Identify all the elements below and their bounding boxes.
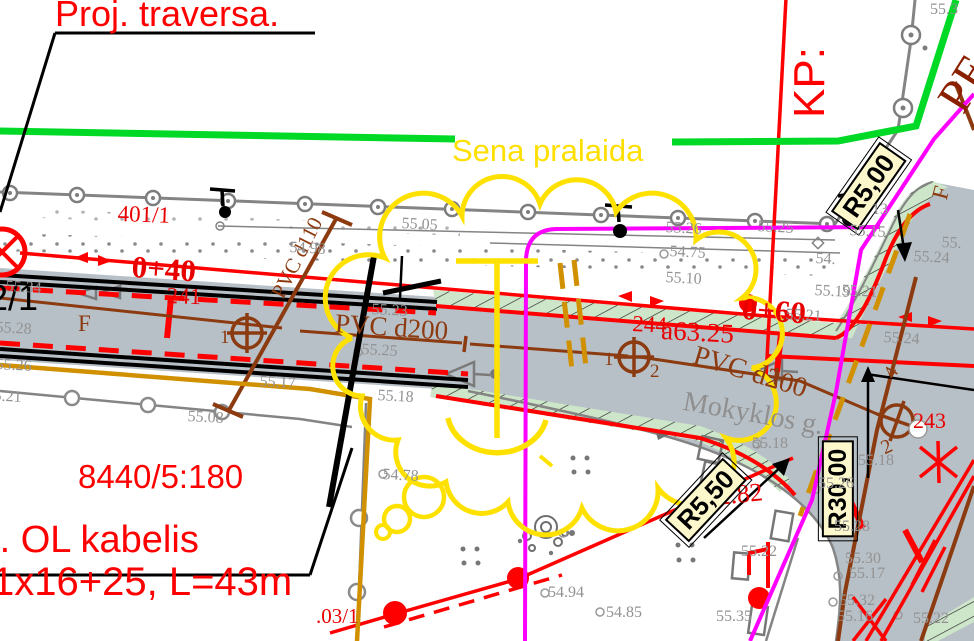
elevation-label: 55.25 <box>757 219 794 237</box>
pipe-label-d110: PVC d110 <box>268 214 326 301</box>
elevation-label: 55.10 <box>665 270 702 288</box>
label-layer: Proj. traversa. 8440/5:180 Proj. OL kabe… <box>0 0 974 641</box>
elevation-label: 55.22 <box>741 544 777 560</box>
elevation-label: 55.21 <box>785 307 822 325</box>
radius-label-r500: R5,00 <box>831 141 907 230</box>
elevation-label: 55.05 <box>401 216 438 234</box>
valve-mark-1a: 1 <box>220 328 230 347</box>
valve-mark-2a: 2 <box>650 362 660 381</box>
elevation-label: 55.24 <box>913 249 950 267</box>
elevation-label: 54.85 <box>606 605 642 621</box>
elevation-label: 55.17 <box>849 566 885 582</box>
pipe-label-f-side: F <box>928 184 954 202</box>
valve-mark-1b: 1 <box>604 350 614 369</box>
pole-label-401-1: 401/1 <box>117 202 170 227</box>
old-culvert-label: Sena pralaida <box>452 135 643 166</box>
elevation-label: 55.21 <box>0 388 22 406</box>
elevation-label: 54. <box>815 251 836 268</box>
elevation-label: 55.26 <box>665 220 702 238</box>
elevation-label: 55.32 <box>839 593 875 609</box>
callout-proj-traversa: Proj. traversa. <box>55 0 279 32</box>
elevation-label: 55.23 <box>371 302 408 320</box>
callout-ol-cable-line2: 1x16+25, L=43m <box>0 562 292 602</box>
pe-pipe-label: PE <box>930 47 974 120</box>
pole-label-243: 243 <box>913 410 946 432</box>
elevation-label: 13 <box>872 202 888 218</box>
elevation-label: 55.28 <box>0 320 32 338</box>
elevation-label: 55.16 <box>837 609 873 625</box>
station-0-40: 0+40 <box>131 251 197 286</box>
callout-ol-cable-line1: Proj. OL kabelis <box>0 521 199 559</box>
elevation-label: 55.26 <box>818 476 854 492</box>
elevation-label: 55.3 <box>930 2 958 18</box>
elevation-label: 54.94 <box>548 585 584 601</box>
elevation-label: 55.17 <box>259 374 296 392</box>
elevation-label: 55.28 <box>834 519 870 535</box>
elevation-label: 54.78 <box>382 467 419 485</box>
kp-station-label: KP: <box>788 47 832 118</box>
elevation-label: 54.98 <box>289 240 326 258</box>
elevation-label: 55.34 <box>5 279 42 297</box>
elevation-label: 55.22 <box>913 611 949 627</box>
pole-label-03-1: .03/1 <box>316 606 359 627</box>
elevation-label: 55.18 <box>858 453 894 469</box>
elevation-label: 55.15 <box>849 223 886 241</box>
elevation-label: 55.18 <box>377 388 414 406</box>
elevation-label: 55.08 <box>187 409 224 427</box>
elevation-label: 55.25 <box>361 342 398 360</box>
elevation-label: 55.35 <box>716 609 752 625</box>
site-plan-canvas[interactable]: Proj. traversa. 8440/5:180 Proj. OL kabe… <box>0 0 974 641</box>
pipe-label-f-main: F <box>78 312 91 335</box>
elevation-label: 55.24 <box>883 330 920 348</box>
parcel-number-label: 8440/5:180 <box>78 460 243 493</box>
elevation-label: 55.21 <box>841 283 878 301</box>
elevation-label: 55.26 <box>0 357 32 375</box>
elevation-label: 55.18 <box>752 436 788 452</box>
elevation-label: 54.75 <box>669 244 706 262</box>
valve-mark-4: 4 <box>880 363 902 382</box>
